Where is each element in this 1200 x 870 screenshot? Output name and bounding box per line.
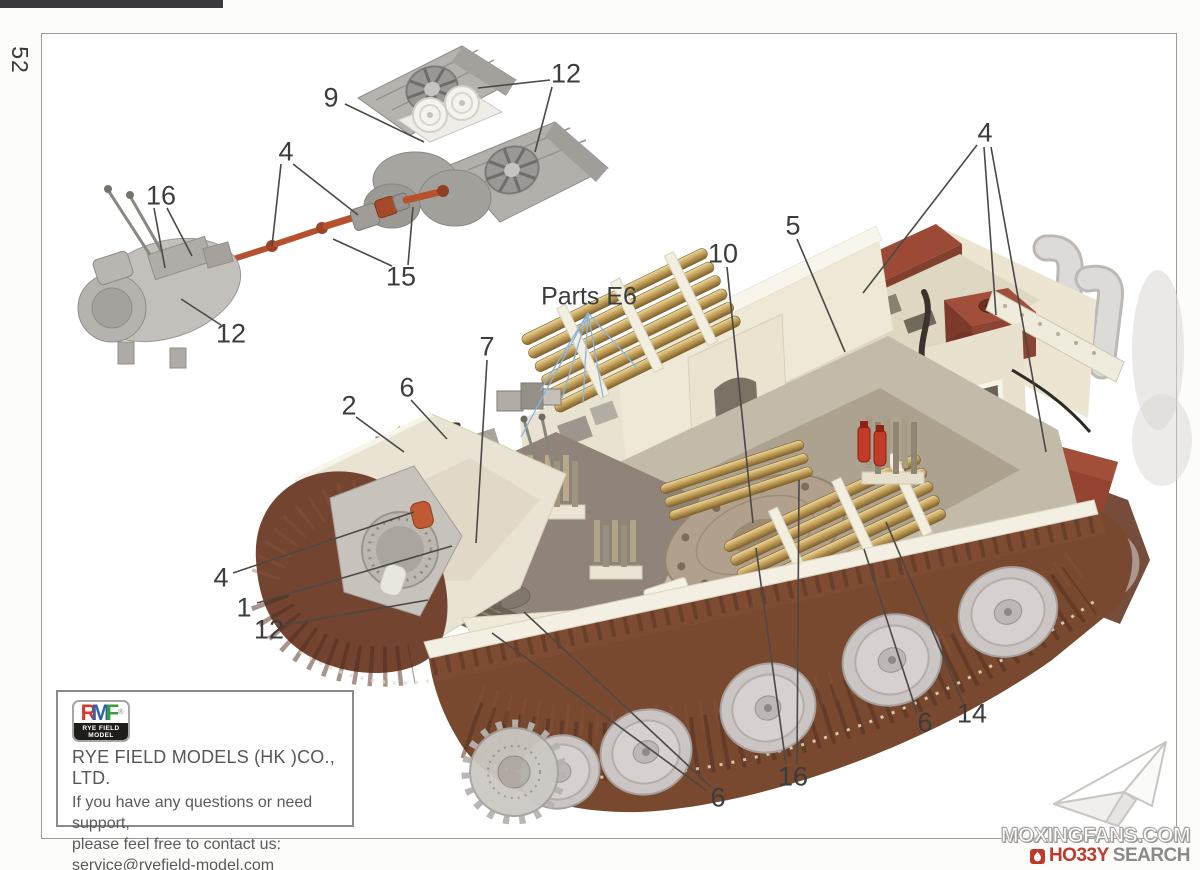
vertical-shell-cluster [862,416,924,484]
callout-16: 16 [146,183,176,210]
callout-1: 1 [236,595,251,622]
hobby-search-logo: HO33Y SEARCH [1030,845,1190,867]
support-info-box: RMF® RYE FIELD MODEL RYE FIELD MODELS (H… [56,690,354,827]
callout-10: 10 [708,241,738,268]
page-number: 52 [0,38,42,82]
callout-4: 4 [213,565,228,592]
flame-icon [1030,849,1045,864]
rmf-logo: RMF® RYE FIELD MODEL [72,700,130,742]
callout-6: 6 [399,375,414,402]
callout-5: 5 [785,213,800,240]
company-name: RYE FIELD MODELS (HK )CO., LTD. [72,747,338,789]
logo-letter-f: F [106,703,117,723]
support-text: If you have any questions or need suppor… [72,792,338,870]
callout-9: 9 [323,85,338,112]
callout-2: 2 [341,393,356,420]
callout-7: 7 [479,334,494,361]
callout-12: 12 [254,617,284,644]
rmf-logo-subtitle: RYE FIELD MODEL [74,723,128,740]
callout-4: 4 [278,139,293,166]
callout-4: 4 [977,120,992,147]
registered-mark: ® [118,703,121,723]
callout-16: 16 [778,764,808,791]
support-line-1: If you have any questions or need suppor… [72,792,338,834]
paper-airplane-icon [1054,742,1166,826]
callout-6: 6 [917,710,932,737]
rmf-logo-letters: RMF® [81,703,122,723]
callout-15: 15 [386,264,416,291]
support-line-2: please feel free to contact us: [72,834,338,855]
callout-6: 6 [710,785,725,812]
hobby-search-red-text: HO33Y [1049,845,1109,867]
callout-12: 12 [551,61,581,88]
callout-14: 14 [957,701,987,728]
driveshaft [224,185,449,262]
parts-e6-label: Parts E6 [541,283,637,312]
manual-page: 9 12 4 15 16 12 7 6 2 10 5 4 4 1 12 16 6… [0,0,1200,870]
support-email: service@ryefield-model.com [72,855,338,870]
callout-12: 12 [216,321,246,348]
vertical-shell-cluster [590,520,642,579]
hobby-search-gray-text: SEARCH [1113,845,1190,867]
